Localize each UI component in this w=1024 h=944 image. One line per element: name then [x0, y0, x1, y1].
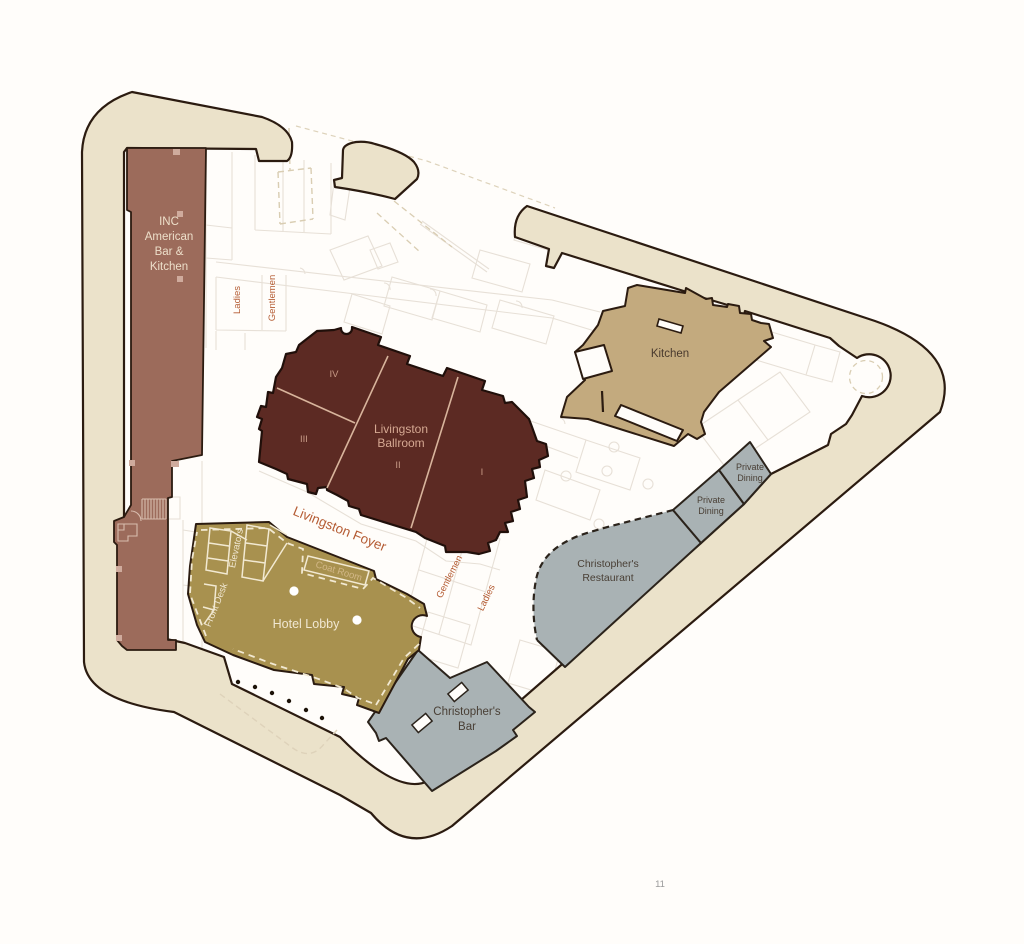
svg-text:Ladies: Ladies: [232, 286, 243, 314]
svg-text:INC: INC: [159, 216, 179, 228]
svg-text:Restaurant: Restaurant: [582, 572, 633, 584]
svg-text:11: 11: [655, 879, 665, 890]
svg-text:Gentlemen: Gentlemen: [267, 275, 278, 321]
svg-text:Bar: Bar: [458, 721, 476, 733]
svg-text:Livingston: Livingston: [374, 422, 428, 436]
svg-text:II: II: [395, 460, 400, 471]
svg-text:Hotel Lobby: Hotel Lobby: [273, 617, 340, 631]
svg-text:Kitchen: Kitchen: [651, 348, 689, 360]
svg-text:Private: Private: [736, 462, 764, 472]
svg-text:III: III: [300, 434, 308, 445]
svg-text:Bar &: Bar &: [155, 246, 184, 258]
svg-text:Private: Private: [697, 495, 725, 505]
svg-text:IV: IV: [330, 369, 340, 380]
svg-text:Ballroom: Ballroom: [377, 436, 424, 450]
svg-text:Dining: Dining: [737, 473, 763, 483]
svg-text:American: American: [145, 231, 194, 243]
svg-text:Christopher's: Christopher's: [433, 706, 501, 718]
svg-text:Dining: Dining: [698, 506, 724, 516]
svg-text:Christopher's: Christopher's: [577, 558, 639, 570]
svg-text:I: I: [481, 467, 484, 478]
svg-text:Kitchen: Kitchen: [150, 261, 188, 273]
